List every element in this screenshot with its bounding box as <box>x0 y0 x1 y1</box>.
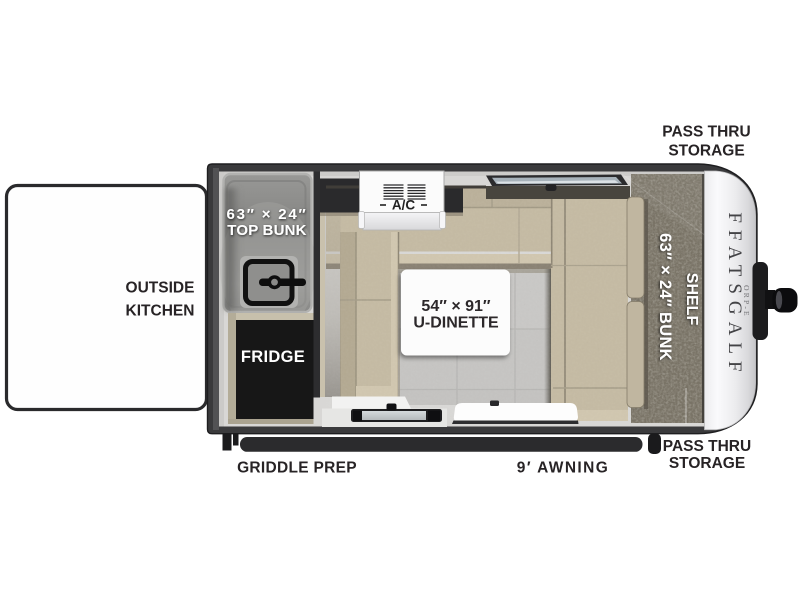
svg-text:PASS THRU: PASS THRU <box>662 124 750 141</box>
svg-text:ORP-E: ORP-E <box>742 285 751 318</box>
svg-text:63″ × 24″: 63″ × 24″ <box>226 206 307 223</box>
svg-text:OUTSIDE: OUTSIDE <box>126 280 195 297</box>
svg-text:STORAGE: STORAGE <box>669 455 745 472</box>
svg-text:SHELF: SHELF <box>683 273 700 326</box>
svg-text:KITCHEN: KITCHEN <box>126 303 195 320</box>
svg-text:9′ AWNING: 9′ AWNING <box>517 460 609 477</box>
svg-text:FFATSGALF: FFATSGALF <box>724 212 745 378</box>
svg-text:A/C: A/C <box>392 198 416 213</box>
svg-text:U-DINETTE: U-DINETTE <box>413 315 499 332</box>
svg-text:TOP BUNK: TOP BUNK <box>227 222 306 239</box>
svg-text:PASS THRU: PASS THRU <box>663 438 751 455</box>
svg-text:54″ × 91″: 54″ × 91″ <box>421 298 490 315</box>
svg-text:FRIDGE: FRIDGE <box>241 348 305 366</box>
svg-text:STORAGE: STORAGE <box>668 142 744 159</box>
svg-text:GRIDDLE PREP: GRIDDLE PREP <box>237 460 357 477</box>
svg-text:63″ × 24″ BUNK: 63″ × 24″ BUNK <box>656 233 674 361</box>
